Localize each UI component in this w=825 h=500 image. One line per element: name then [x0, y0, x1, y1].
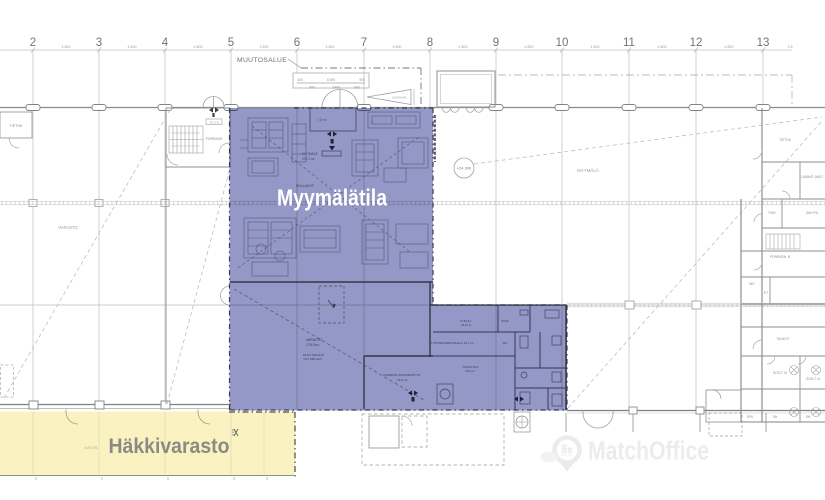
- svg-text:7: 7: [361, 37, 367, 49]
- svg-text:400: 400: [297, 78, 303, 82]
- svg-text:PORRASH. B: PORRASH. B: [770, 255, 791, 259]
- svg-text:WC: WC: [749, 282, 755, 286]
- svg-text:SPK: SPK: [747, 415, 754, 419]
- svg-text:4 800: 4 800: [393, 45, 402, 49]
- svg-text:SH: SH: [773, 415, 778, 419]
- svg-text:VARASTO: VARASTO: [58, 225, 78, 230]
- svg-text:4 800: 4 800: [591, 45, 600, 49]
- svg-text:TAUKOT: TAUKOT: [776, 337, 789, 341]
- svg-text:Myymälätila: Myymälätila: [277, 185, 387, 211]
- svg-text:900: 900: [354, 86, 360, 90]
- svg-text:TIETOK: TIETOK: [779, 138, 792, 142]
- svg-text:SÄH.PK: SÄH.PK: [806, 211, 819, 215]
- svg-text:9: 9: [493, 37, 499, 49]
- svg-text:MatchOffice: MatchOffice: [588, 438, 709, 466]
- svg-text:TIETOK: TIETOK: [10, 124, 24, 128]
- svg-text:12: 12: [690, 37, 703, 49]
- svg-text:3 800: 3 800: [332, 86, 340, 90]
- svg-text:SOS.T. N: SOS.T. N: [806, 377, 820, 381]
- svg-text:6: 6: [294, 37, 300, 49]
- svg-text:11: 11: [623, 37, 635, 49]
- svg-text:4 800: 4 800: [62, 45, 71, 49]
- svg-text:SOS.T. M: SOS.T. M: [773, 371, 787, 375]
- svg-text:4 800: 4 800: [725, 45, 734, 49]
- svg-text:6 000: 6 000: [327, 78, 335, 82]
- svg-text:4 800: 4 800: [128, 45, 137, 49]
- svg-text:900: 900: [309, 86, 315, 90]
- svg-text:4 800: 4 800: [194, 45, 203, 49]
- svg-text:4 800: 4 800: [658, 45, 667, 49]
- svg-text:5: 5: [228, 37, 234, 49]
- svg-text:4: 4: [162, 37, 169, 49]
- svg-text:4 800: 4 800: [525, 45, 534, 49]
- svg-text:+24.300: +24.300: [457, 166, 472, 171]
- svg-text:900: 900: [359, 78, 365, 82]
- svg-text:MYYMÄLÄ: MYYMÄLÄ: [577, 168, 599, 173]
- svg-text:MUUTOSALUE: MUUTOSALUE: [237, 57, 287, 64]
- svg-text:4 800: 4 800: [260, 45, 269, 49]
- svg-text:PORRASH: PORRASH: [206, 137, 223, 141]
- svg-text:KATOS: KATOS: [84, 445, 98, 450]
- svg-text:13: 13: [757, 37, 770, 49]
- svg-text:4 8: 4 8: [788, 45, 793, 49]
- svg-text:4 800: 4 800: [326, 45, 335, 49]
- svg-text:Häkkivarasto: Häkkivarasto: [109, 434, 230, 458]
- svg-text:2: 2: [30, 37, 36, 49]
- svg-text:LUISKA 8%: LUISKA 8%: [392, 96, 407, 100]
- svg-text:TK 2.6: TK 2.6: [210, 120, 219, 124]
- svg-text:10: 10: [556, 37, 569, 49]
- svg-text:3: 3: [96, 37, 102, 49]
- svg-text:ET: ET: [764, 291, 768, 295]
- svg-text:SH: SH: [806, 415, 811, 419]
- svg-text:PUH: PUH: [769, 211, 777, 215]
- svg-text:8: 8: [427, 37, 433, 49]
- svg-text:4 800: 4 800: [459, 45, 468, 49]
- svg-text:LÄMMÖ JAKO: LÄMMÖ JAKO: [801, 175, 823, 179]
